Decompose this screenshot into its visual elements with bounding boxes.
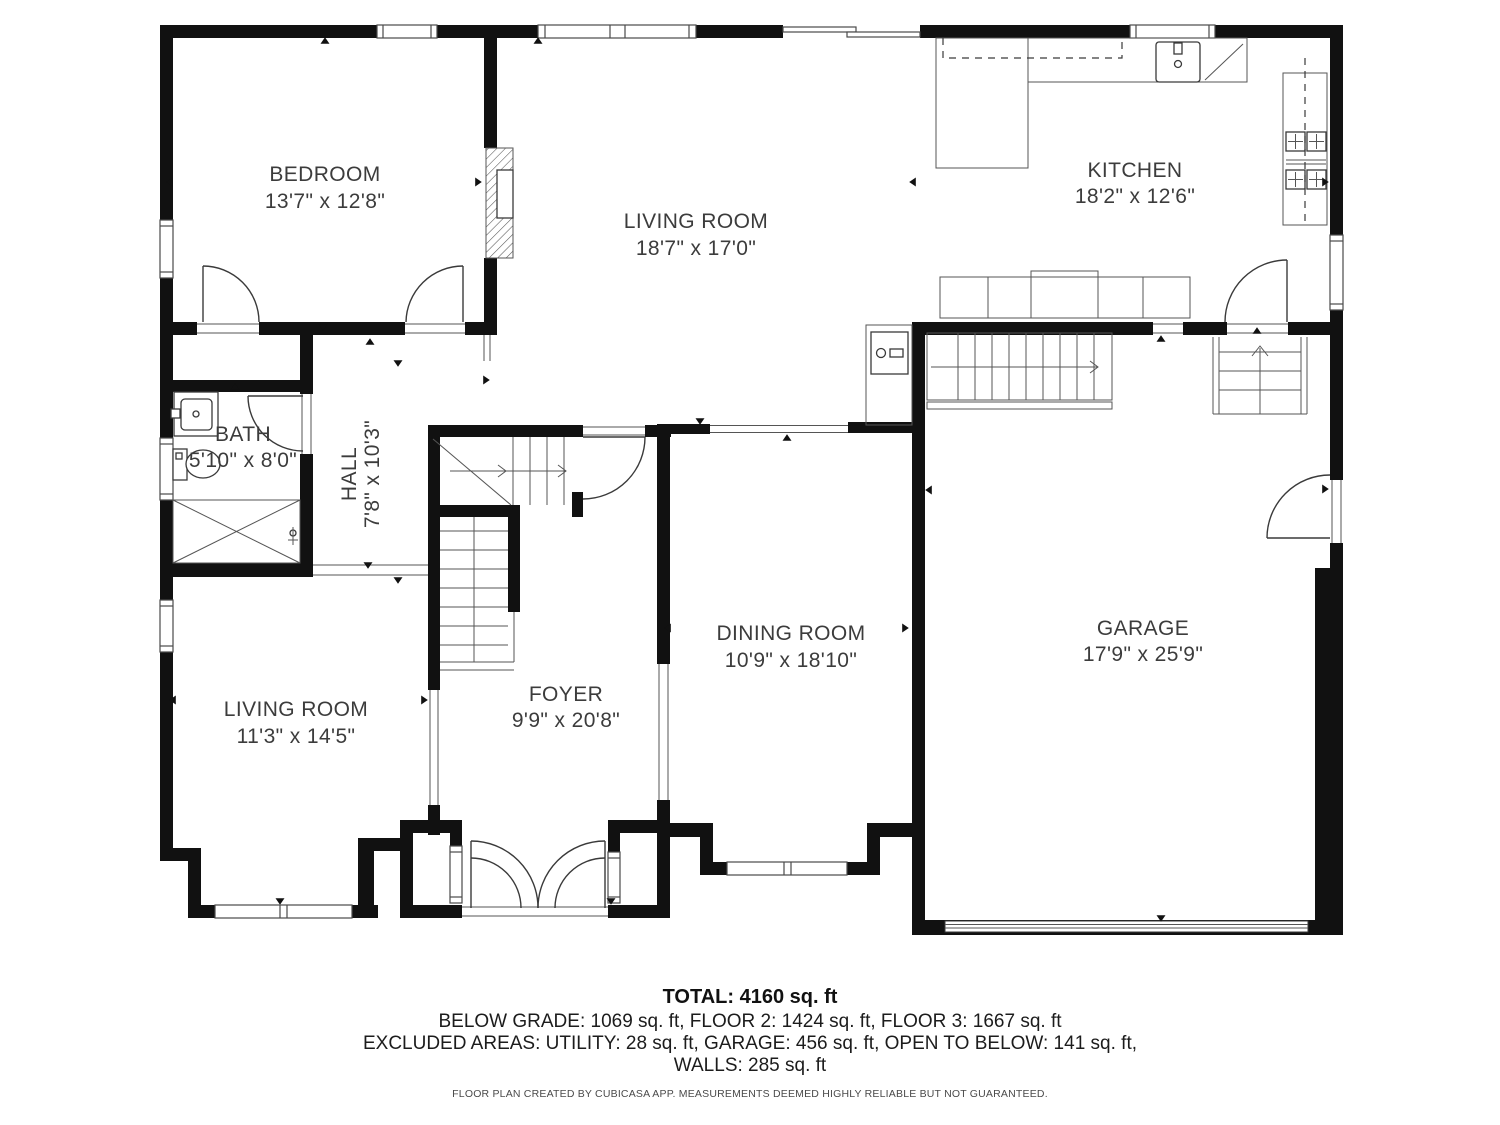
room-dims: 17'9" x 25'9" bbox=[1083, 643, 1203, 666]
sliding-door bbox=[783, 25, 920, 38]
excluded-area-text: EXCLUDED AREAS: UTILITY: 28 sq. ft, GARA… bbox=[363, 1033, 1137, 1054]
door-opening bbox=[1330, 480, 1343, 543]
room-label-living-room-upper: LIVING ROOM 18'7" x 17'0" bbox=[624, 210, 768, 260]
room-labels: BEDROOM 13'7" x 12'8" LIVING ROOM 18'7" … bbox=[189, 159, 1203, 748]
summary-block: TOTAL: 4160 sq. ft BELOW GRADE: 1069 sq.… bbox=[363, 986, 1137, 1100]
opening bbox=[484, 335, 490, 361]
bath-fixtures bbox=[171, 392, 300, 563]
floor-plan-canvas: BEDROOM 13'7" x 12'8" LIVING ROOM 18'7" … bbox=[0, 0, 1500, 1125]
basement-staircase bbox=[927, 333, 1112, 409]
bay-window bbox=[215, 905, 352, 918]
bath-sink bbox=[171, 392, 218, 436]
entry-sill bbox=[462, 905, 608, 918]
room-name: KITCHEN bbox=[1088, 159, 1183, 182]
window bbox=[1130, 25, 1215, 38]
room-label-kitchen: KITCHEN 18'2" x 12'6" bbox=[1075, 159, 1195, 208]
window bbox=[160, 600, 173, 652]
room-dims: 11'3" x 14'5" bbox=[237, 725, 356, 748]
door-opening bbox=[405, 322, 465, 335]
room-dims: 18'2" x 12'6" bbox=[1075, 185, 1195, 208]
floors-area-text: BELOW GRADE: 1069 sq. ft, FLOOR 2: 1424 … bbox=[438, 1011, 1062, 1032]
total-area-text: TOTAL: 4160 sq. ft bbox=[663, 986, 838, 1008]
room-dims: 10'9" x 18'10" bbox=[725, 649, 857, 672]
shower bbox=[173, 500, 300, 563]
garage-door bbox=[945, 921, 1308, 932]
room-name: GARAGE bbox=[1097, 617, 1189, 640]
room-name: BATH bbox=[215, 423, 271, 446]
room-dims: 7'8" x 10'3" bbox=[361, 420, 384, 528]
walls-area-text: WALLS: 285 sq. ft bbox=[674, 1055, 827, 1076]
room-dims: 13'7" x 12'8" bbox=[265, 190, 385, 213]
room-label-living-room-lower: LIVING ROOM 11'3" x 14'5" bbox=[224, 698, 368, 748]
door-opening bbox=[300, 394, 313, 454]
opening bbox=[710, 424, 848, 434]
window bbox=[377, 25, 437, 38]
disclaimer-text: FLOOR PLAN CREATED BY CUBICASA APP. MEAS… bbox=[452, 1088, 1048, 1100]
sidelight-window bbox=[450, 846, 462, 903]
window bbox=[1330, 235, 1343, 310]
entry-double-door bbox=[471, 841, 605, 908]
foyer-staircase bbox=[433, 437, 566, 670]
utility-closet bbox=[866, 325, 912, 425]
lower-run bbox=[440, 517, 514, 670]
bedroom-door-left bbox=[203, 266, 259, 322]
room-dims: 18'7" x 17'0" bbox=[636, 237, 756, 260]
room-name: LIVING ROOM bbox=[224, 698, 368, 721]
room-label-hall: HALL 7'8" x 10'3" bbox=[338, 420, 384, 528]
kitchen-garage-door bbox=[1225, 260, 1287, 322]
room-dims: 9'9" x 20'8" bbox=[512, 709, 620, 732]
upper-staircase bbox=[1213, 337, 1307, 414]
fireplace bbox=[486, 148, 513, 258]
bay-window bbox=[727, 862, 847, 875]
room-label-bedroom: BEDROOM 13'7" x 12'8" bbox=[265, 163, 385, 213]
window bbox=[160, 220, 173, 278]
stove-icon bbox=[1286, 132, 1326, 189]
garage-side-door bbox=[1267, 475, 1330, 538]
room-name: LIVING ROOM bbox=[624, 210, 768, 233]
opening bbox=[657, 664, 670, 800]
window bbox=[160, 438, 173, 500]
room-name: FOYER bbox=[529, 683, 603, 706]
door-opening bbox=[583, 425, 645, 437]
bedroom-door-right bbox=[406, 266, 463, 322]
window bbox=[538, 25, 696, 38]
room-label-dining-room: DINING ROOM 10'9" x 18'10" bbox=[716, 622, 865, 672]
opening bbox=[428, 690, 440, 805]
door-opening bbox=[197, 322, 259, 335]
room-label-foyer: FOYER 9'9" x 20'8" bbox=[512, 683, 620, 732]
doors bbox=[203, 260, 1330, 908]
room-label-garage: GARAGE 17'9" x 25'9" bbox=[1083, 617, 1203, 666]
kitchen-sink bbox=[1156, 42, 1200, 82]
room-name: HALL bbox=[338, 447, 361, 501]
washer-icon bbox=[871, 332, 908, 374]
room-name: BEDROOM bbox=[269, 163, 380, 186]
sidelight-window bbox=[608, 852, 620, 903]
opening bbox=[1153, 322, 1183, 335]
room-dims: 5'10" x 8'0" bbox=[189, 449, 297, 472]
kitchen-peninsula bbox=[940, 271, 1190, 318]
floor-plan-page: BEDROOM 13'7" x 12'8" LIVING ROOM 18'7" … bbox=[0, 0, 1500, 1125]
foyer-stair-door bbox=[583, 437, 645, 499]
room-name: DINING ROOM bbox=[716, 622, 865, 645]
